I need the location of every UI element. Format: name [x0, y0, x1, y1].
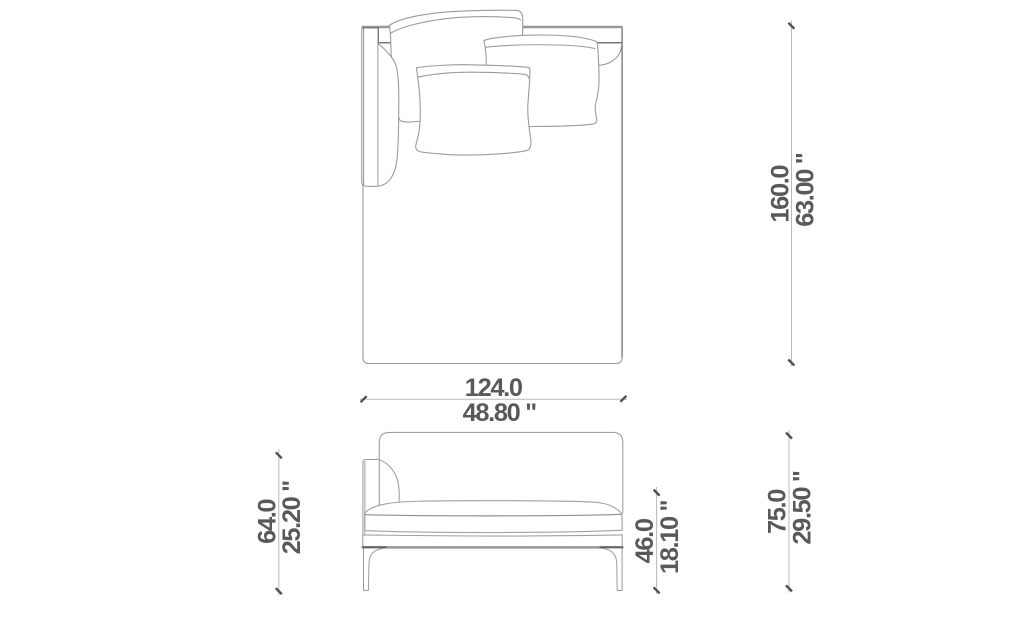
- svg-text:160.0: 160.0: [766, 165, 794, 223]
- svg-text:75.0: 75.0: [763, 489, 791, 534]
- svg-text:63.00 ": 63.00 ": [791, 153, 819, 226]
- svg-text:18.10 ": 18.10 ": [656, 501, 684, 574]
- svg-text:64.0: 64.0: [253, 499, 281, 544]
- svg-text:25.20 ": 25.20 ": [278, 481, 306, 554]
- svg-text:46.0: 46.0: [631, 518, 659, 563]
- svg-text:29.50 ": 29.50 ": [788, 471, 816, 544]
- svg-text:124.0: 124.0: [465, 374, 523, 402]
- svg-text:48.80 ": 48.80 ": [463, 399, 536, 427]
